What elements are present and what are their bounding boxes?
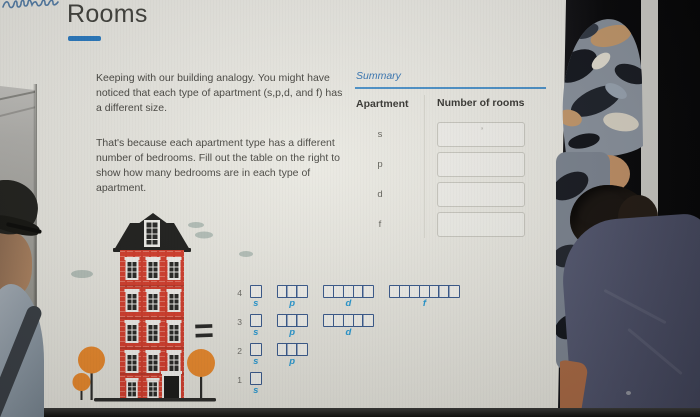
- summary-rows: s’pdf: [352, 119, 552, 239]
- page-title: Rooms: [67, 0, 148, 29]
- orbital-row: 1s: [228, 372, 475, 396]
- summary-table-row: s’: [352, 119, 552, 149]
- orbital-label: s: [253, 328, 258, 338]
- intro-paragraph-1: Keeping with our building analogy. You m…: [96, 71, 344, 116]
- orbital-boxes: [277, 314, 308, 327]
- orbital-boxes: [277, 285, 308, 298]
- column-header-apartment: Apartment: [356, 98, 409, 110]
- summary-heading: Summary: [356, 70, 401, 82]
- orbital-boxes: [389, 285, 460, 298]
- orbital-group-f: f: [389, 285, 460, 309]
- orbital-label: s: [253, 357, 258, 367]
- orbital-row: 4spdf: [228, 285, 475, 309]
- rooms-input-p[interactable]: [437, 152, 525, 177]
- orbital-group-p: p: [277, 285, 308, 309]
- orbital-boxes: [250, 314, 262, 327]
- orbital-group-s: s: [250, 343, 262, 367]
- orbital-box: [250, 314, 262, 327]
- column-header-rooms: Number of rooms: [437, 97, 525, 109]
- apartment-type-label: p: [352, 159, 408, 170]
- orbital-label: d: [345, 299, 351, 309]
- summary-table-row: f: [352, 209, 552, 239]
- orbital-label: p: [289, 299, 295, 309]
- orbital-row: 2sp: [228, 343, 475, 367]
- tree: [78, 347, 105, 374]
- energy-level-label: 4: [228, 285, 242, 298]
- orbital-label: s: [253, 386, 258, 396]
- apartment-type-label: f: [352, 219, 408, 230]
- orbital-label: d: [345, 328, 351, 338]
- orbital-box: [250, 343, 262, 356]
- orbital-box: [296, 285, 308, 298]
- orbital-boxes: [323, 285, 374, 298]
- door: [164, 376, 179, 400]
- handwritten-scribble: [2, 0, 62, 12]
- orbital-boxes: [250, 285, 262, 298]
- summary-table-row: d: [352, 179, 552, 209]
- orbital-box: [250, 372, 262, 385]
- summary-table-row: p: [352, 149, 552, 179]
- orbital-group-s: s: [250, 372, 262, 396]
- orbital-box: [362, 314, 374, 327]
- orbital-group-p: p: [277, 343, 308, 367]
- title-underline: [68, 36, 101, 41]
- orbital-box: [296, 314, 308, 327]
- bystander-navy-shirt: [560, 185, 700, 417]
- energy-level-label: 2: [228, 343, 242, 356]
- cloud: [71, 270, 93, 278]
- stray-mark: ’: [481, 126, 483, 136]
- orbital-label: f: [423, 299, 426, 309]
- shirt-logo-dot: [626, 391, 631, 395]
- orbital-boxes: [277, 343, 308, 356]
- equals-sign: =: [193, 316, 214, 347]
- orbital-label: p: [289, 357, 295, 367]
- orbital-group-d: d: [323, 314, 374, 338]
- orbital-diagram: 4spdf3spd2sp1s: [228, 285, 475, 401]
- orbital-row: 3spd: [228, 314, 475, 338]
- energy-level-label: 3: [228, 314, 242, 327]
- orbital-boxes: [250, 372, 262, 385]
- orbital-box: [296, 343, 308, 356]
- orbital-group-s: s: [250, 285, 262, 309]
- orbital-group-p: p: [277, 314, 308, 338]
- orbital-box: [362, 285, 374, 298]
- rooms-input-f[interactable]: [437, 212, 525, 237]
- orbital-boxes: [323, 314, 374, 327]
- orbital-boxes: [250, 343, 262, 356]
- intro-paragraph-2: That's because each apartment type has a…: [96, 136, 344, 196]
- orbital-group-s: s: [250, 314, 262, 338]
- rooms-input-d[interactable]: [437, 182, 525, 207]
- monitor-bottom-bezel: [0, 408, 700, 417]
- apartment-type-label: d: [352, 189, 408, 200]
- energy-level-label: 1: [228, 372, 242, 385]
- orbital-box: [250, 285, 262, 298]
- monitor-screen: Rooms Keeping with our building analogy.…: [0, 0, 568, 410]
- orbital-label: p: [289, 328, 295, 338]
- summary-rule: [355, 87, 546, 89]
- orbital-group-d: d: [323, 285, 374, 309]
- rooms-input-s[interactable]: ’: [437, 122, 525, 147]
- apartment-type-label: s: [352, 129, 408, 140]
- foreground-person-cap: [0, 180, 44, 417]
- photo-of-monitor: Rooms Keeping with our building analogy.…: [0, 0, 700, 417]
- orbital-label: s: [253, 299, 258, 309]
- orbital-box: [448, 285, 460, 298]
